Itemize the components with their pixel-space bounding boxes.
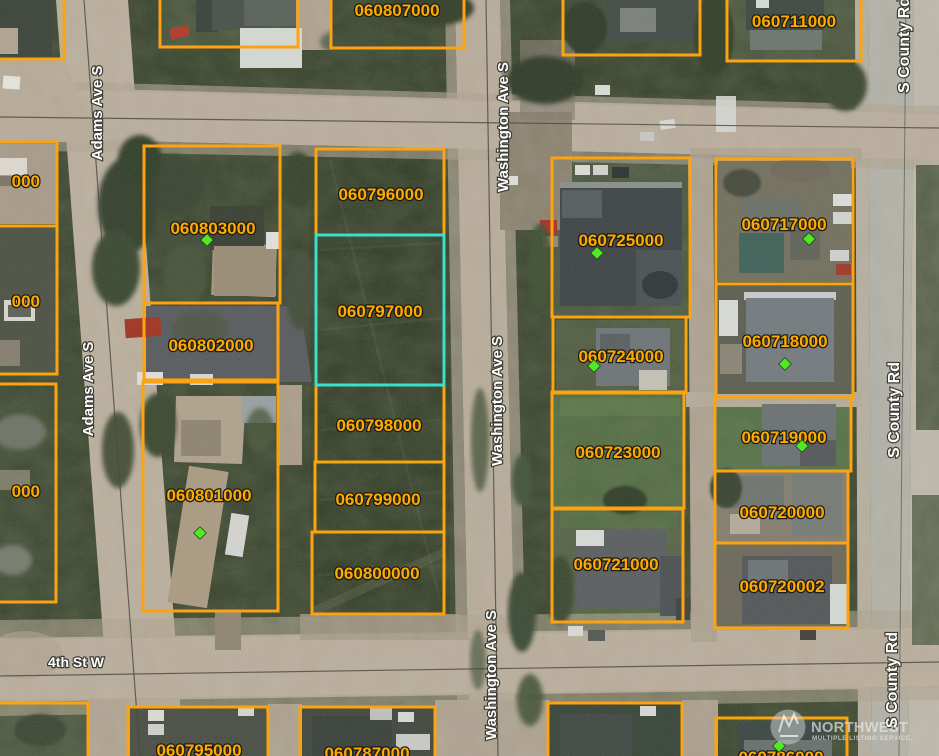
- svg-text:060799000: 060799000: [335, 490, 420, 509]
- svg-text:060721000: 060721000: [573, 555, 658, 574]
- svg-text:060800000: 060800000: [334, 564, 419, 583]
- svg-text:060787000: 060787000: [324, 744, 409, 756]
- svg-text:Adams Ave S: Adams Ave S: [80, 342, 97, 437]
- svg-text:Adams Ave S: Adams Ave S: [89, 66, 106, 161]
- svg-text:060803000: 060803000: [170, 219, 255, 238]
- svg-text:060795000: 060795000: [156, 741, 241, 756]
- svg-text:060723000: 060723000: [575, 443, 660, 462]
- svg-text:060725000: 060725000: [578, 231, 663, 250]
- svg-text:S County Rd: S County Rd: [884, 632, 901, 728]
- svg-text:MULTIPLE LISTING SERVICE.: MULTIPLE LISTING SERVICE.: [812, 735, 913, 742]
- svg-text:NORTHWEST: NORTHWEST: [811, 720, 908, 736]
- svg-text:000: 000: [12, 482, 40, 501]
- svg-text:060797000: 060797000: [337, 302, 422, 321]
- svg-text:060717000: 060717000: [741, 215, 826, 234]
- svg-text:060711000: 060711000: [752, 12, 836, 31]
- svg-text:000: 000: [12, 172, 40, 191]
- svg-text:060796000: 060796000: [338, 185, 423, 204]
- svg-text:060798000: 060798000: [336, 416, 421, 435]
- svg-text:Washington Ave S: Washington Ave S: [483, 610, 500, 740]
- svg-text:S County Rd: S County Rd: [896, 0, 913, 93]
- svg-text:060807000: 060807000: [354, 1, 439, 20]
- svg-text:060718000: 060718000: [742, 332, 827, 351]
- svg-text:S County Rd: S County Rd: [886, 362, 903, 458]
- svg-text:Washington Ave S: Washington Ave S: [489, 336, 506, 466]
- svg-text:060802000: 060802000: [168, 336, 253, 355]
- svg-text:000: 000: [12, 292, 40, 311]
- svg-text:060801000: 060801000: [166, 486, 251, 505]
- svg-text:Washington Ave S: Washington Ave S: [495, 62, 512, 192]
- svg-text:4th St W: 4th St W: [48, 654, 105, 670]
- svg-text:060719000: 060719000: [741, 428, 826, 447]
- svg-text:060720000: 060720000: [739, 503, 824, 522]
- svg-text:060720002: 060720002: [739, 577, 824, 596]
